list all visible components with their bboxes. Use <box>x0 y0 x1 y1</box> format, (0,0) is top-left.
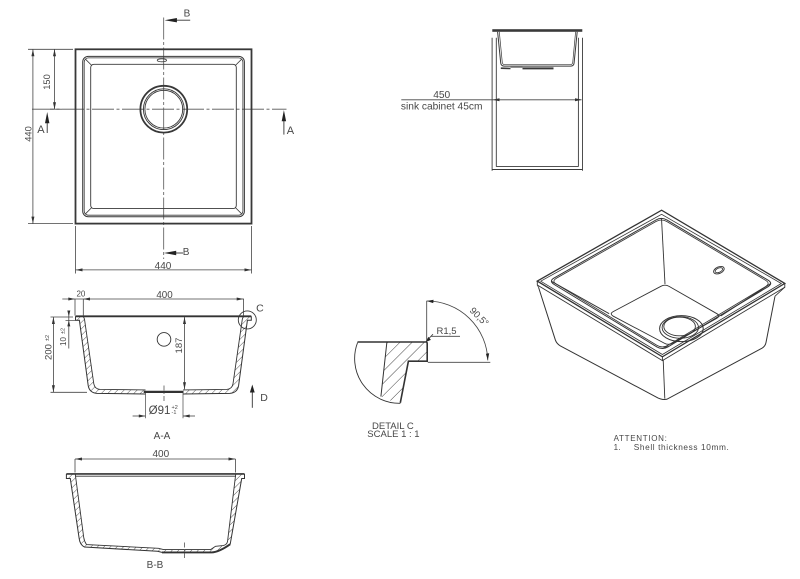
svg-text:D: D <box>260 392 268 404</box>
svg-text:A-A: A-A <box>154 431 171 442</box>
svg-text:20: 20 <box>76 290 85 299</box>
svg-text:200: 200 <box>43 344 54 360</box>
svg-text:440: 440 <box>24 126 34 142</box>
svg-text:90,5°: 90,5° <box>467 305 491 329</box>
svg-text:450: 450 <box>433 90 450 101</box>
svg-text:R1,5: R1,5 <box>437 326 457 337</box>
svg-text:-1: -1 <box>172 410 177 416</box>
svg-text:10: 10 <box>59 337 68 346</box>
svg-text:187: 187 <box>174 338 185 354</box>
svg-text:A: A <box>287 125 295 137</box>
svg-text:A: A <box>37 124 45 136</box>
svg-text:150: 150 <box>42 74 52 90</box>
svg-text:440: 440 <box>155 261 172 272</box>
svg-text:SCALE 1 : 1: SCALE 1 : 1 <box>367 429 419 440</box>
svg-text:Shell thickness 10mm.: Shell thickness 10mm. <box>634 442 730 452</box>
svg-text:400: 400 <box>152 449 169 460</box>
svg-text:B: B <box>184 8 191 19</box>
svg-text:±2: ±2 <box>61 328 67 334</box>
svg-text:400: 400 <box>156 290 173 301</box>
svg-text:Ø91: Ø91 <box>149 405 171 417</box>
svg-text:±2: ±2 <box>45 335 51 341</box>
svg-text:C: C <box>256 303 264 315</box>
svg-text:sink cabinet 45cm: sink cabinet 45cm <box>401 102 483 113</box>
svg-text:B: B <box>183 247 190 258</box>
svg-text:B-B: B-B <box>147 560 164 571</box>
svg-text:1.: 1. <box>614 443 622 452</box>
